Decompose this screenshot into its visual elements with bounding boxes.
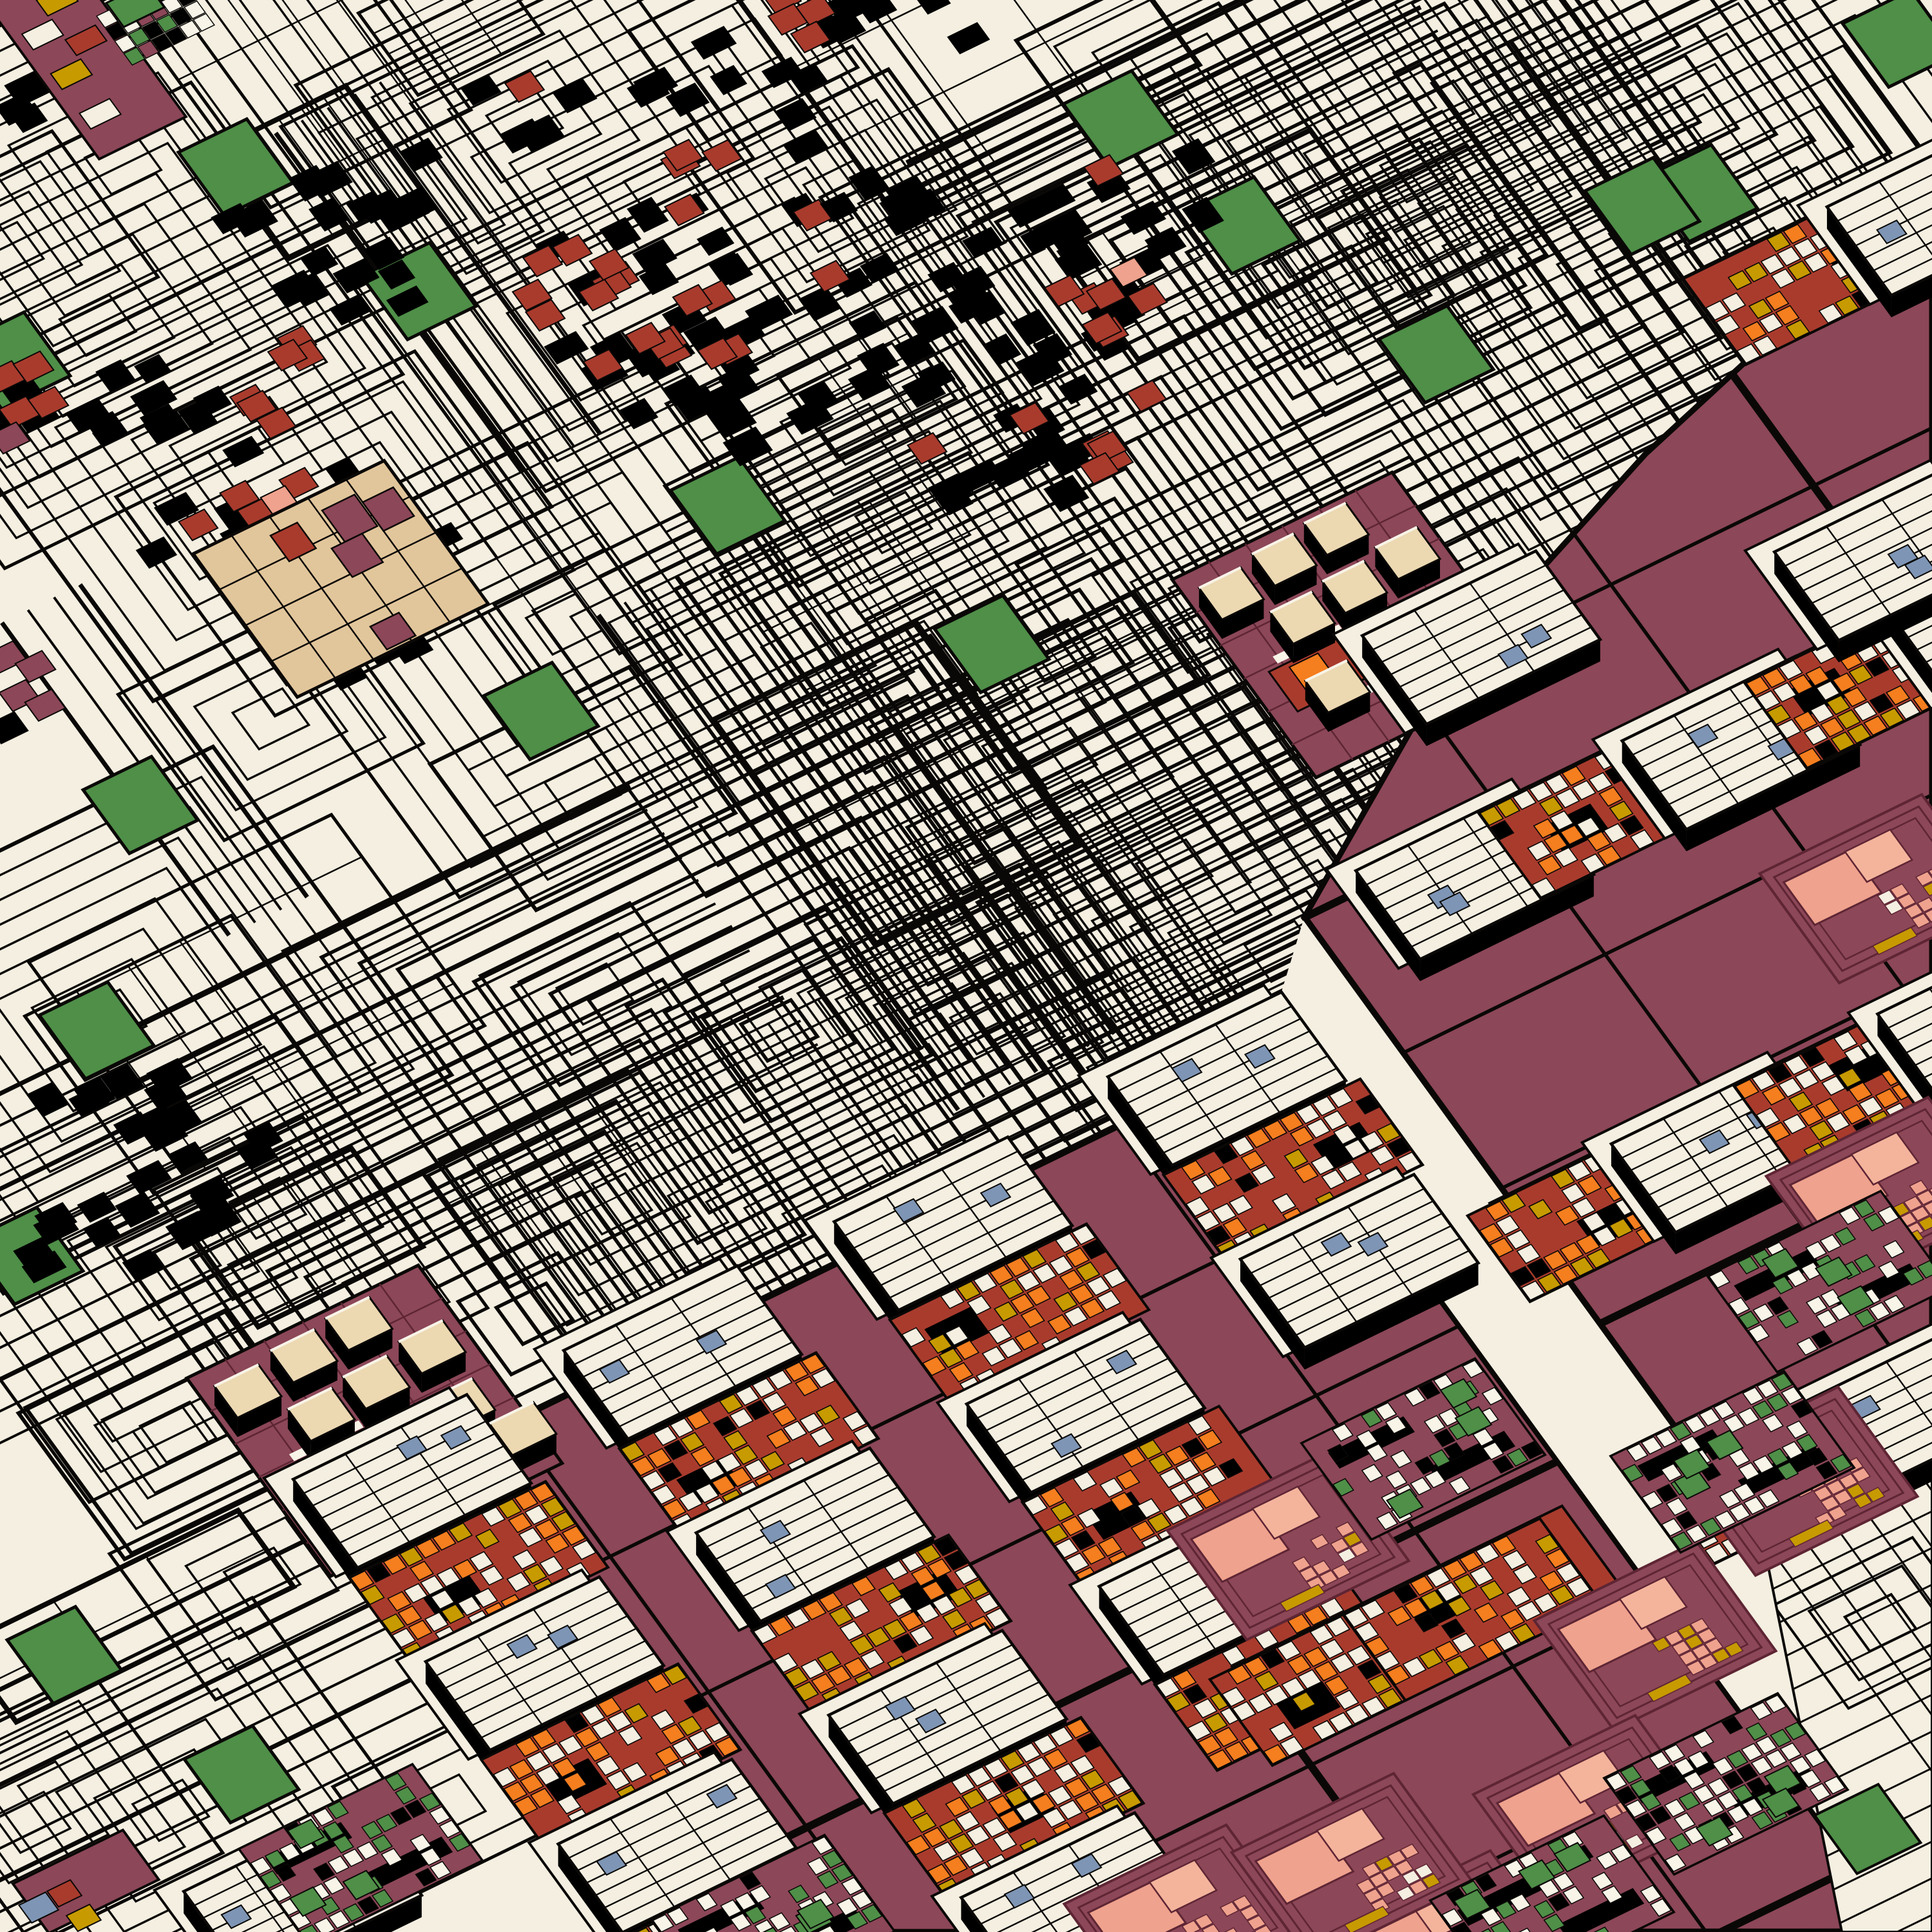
generative-isometric-cityscape xyxy=(0,0,1932,1932)
generative-artwork-page xyxy=(0,0,1932,1932)
